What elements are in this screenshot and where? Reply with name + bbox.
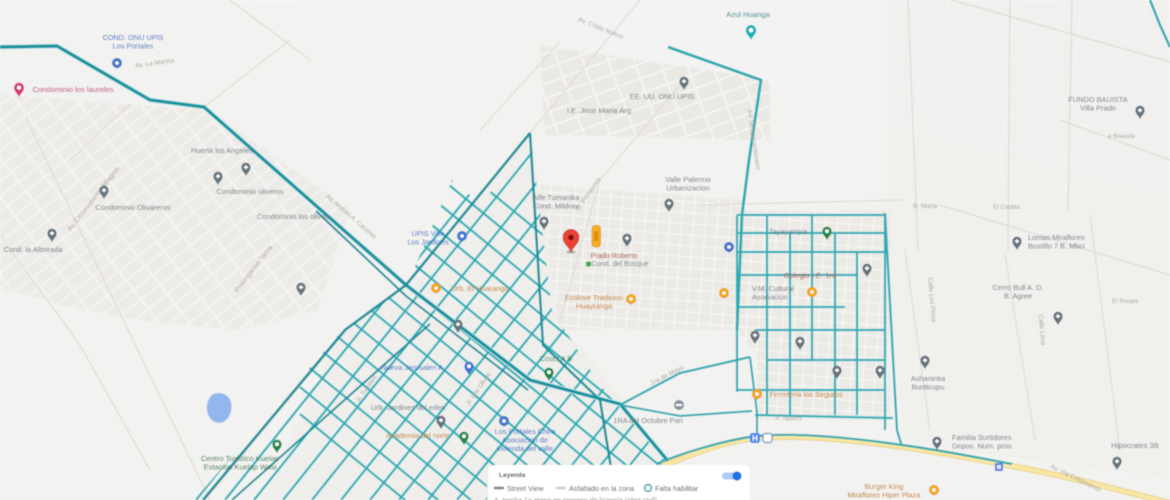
svg-text:Nueva Jerusalen A: Nueva Jerusalen A xyxy=(381,363,443,372)
svg-text:B. Marta: B. Marta xyxy=(913,203,938,210)
svg-text:Valle PalermoUrbanizacion: Valle PalermoUrbanizacion xyxy=(665,175,710,193)
svg-text:EE. UU. ONU UPIS: EE. UU. ONU UPIS xyxy=(630,92,695,101)
svg-text:Centro Turistico KuelapEstacio: Centro Turistico KuelapEstacion Kuelap W… xyxy=(201,454,279,472)
svg-text:Alfe TumanikaCond. Mildray: Alfe TumanikaCond. Mildray xyxy=(533,193,581,211)
svg-text:e Bauista: e Bauista xyxy=(1108,133,1135,140)
svg-text:Urb. El Huarango: Urb. El Huarango xyxy=(451,284,508,293)
svg-text:Condominio los laureles: Condominio los laureles xyxy=(32,85,113,94)
svg-text:Ferreteria los Seguros: Ferreteria los Seguros xyxy=(769,390,842,399)
svg-text:Jr. Iquitos: Jr. Iquitos xyxy=(774,415,803,423)
svg-text:Hipocrates 3B: Hipocrates 3B xyxy=(1111,441,1159,450)
svg-text:Leyenda: Leyenda xyxy=(499,472,526,479)
svg-text:Los Portales ChiraAsociacion d: Los Portales ChiraAsociacion devivienda … xyxy=(495,427,557,453)
svg-text:Tayapampa: Tayapampa xyxy=(769,227,808,236)
svg-text:Urb. Jardines del eden: Urb. Jardines del eden xyxy=(371,403,445,412)
svg-text:Condominio oliveros: Condominio oliveros xyxy=(217,187,284,196)
svg-text:Asfaltado en la zona: Asfaltado en la zona xyxy=(569,484,634,493)
svg-text:Huerta los Angeles: Huerta los Angeles xyxy=(191,146,253,155)
svg-text:H: H xyxy=(752,434,758,443)
svg-text:CcuLI A B: CcuLI A B xyxy=(540,354,573,363)
svg-text:Academia del norte: Academia del norte xyxy=(386,431,450,440)
svg-text:Azul Huanga: Azul Huanga xyxy=(726,10,770,19)
svg-text:Lomas MirafloresBustillo 7 B,: Lomas MirafloresBustillo 7 B, Mbci xyxy=(1028,233,1085,251)
svg-text:El Roupe: El Roupe xyxy=(1112,298,1139,305)
svg-text:Condominio los olivos: Condominio los olivos xyxy=(257,212,329,221)
svg-text:Cond. del Bosque: Cond. del Bosque xyxy=(591,259,648,268)
svg-text:UPIS VillaLos Jardines: UPIS VillaLos Jardines xyxy=(407,229,449,247)
svg-text:I.E. Jose Maria Arg.: I.E. Jose Maria Arg. xyxy=(567,106,633,115)
svg-text:1RA del Octubre Pan: 1RA del Octubre Pan xyxy=(613,416,682,425)
svg-text:AshaninkaBuriticupu: AshaninkaBuriticupu xyxy=(911,374,946,392)
svg-text:Cond. la Alborada: Cond. la Alborada xyxy=(4,245,64,254)
svg-text:Falta habilitar: Falta habilitar xyxy=(655,484,699,493)
svg-text:Colegio I.E. 1ro: Colegio I.E. 1ro xyxy=(784,271,836,280)
svg-text:Street View: Street View xyxy=(507,484,544,493)
svg-text:Condominio Olivareros: Condominio Olivareros xyxy=(95,203,170,212)
svg-text:Familia SurtidoresDepos. Num.: Familia SurtidoresDepos. Num. prov. xyxy=(952,433,1013,451)
svg-text:El Cedilla: El Cedilla xyxy=(993,204,1020,211)
